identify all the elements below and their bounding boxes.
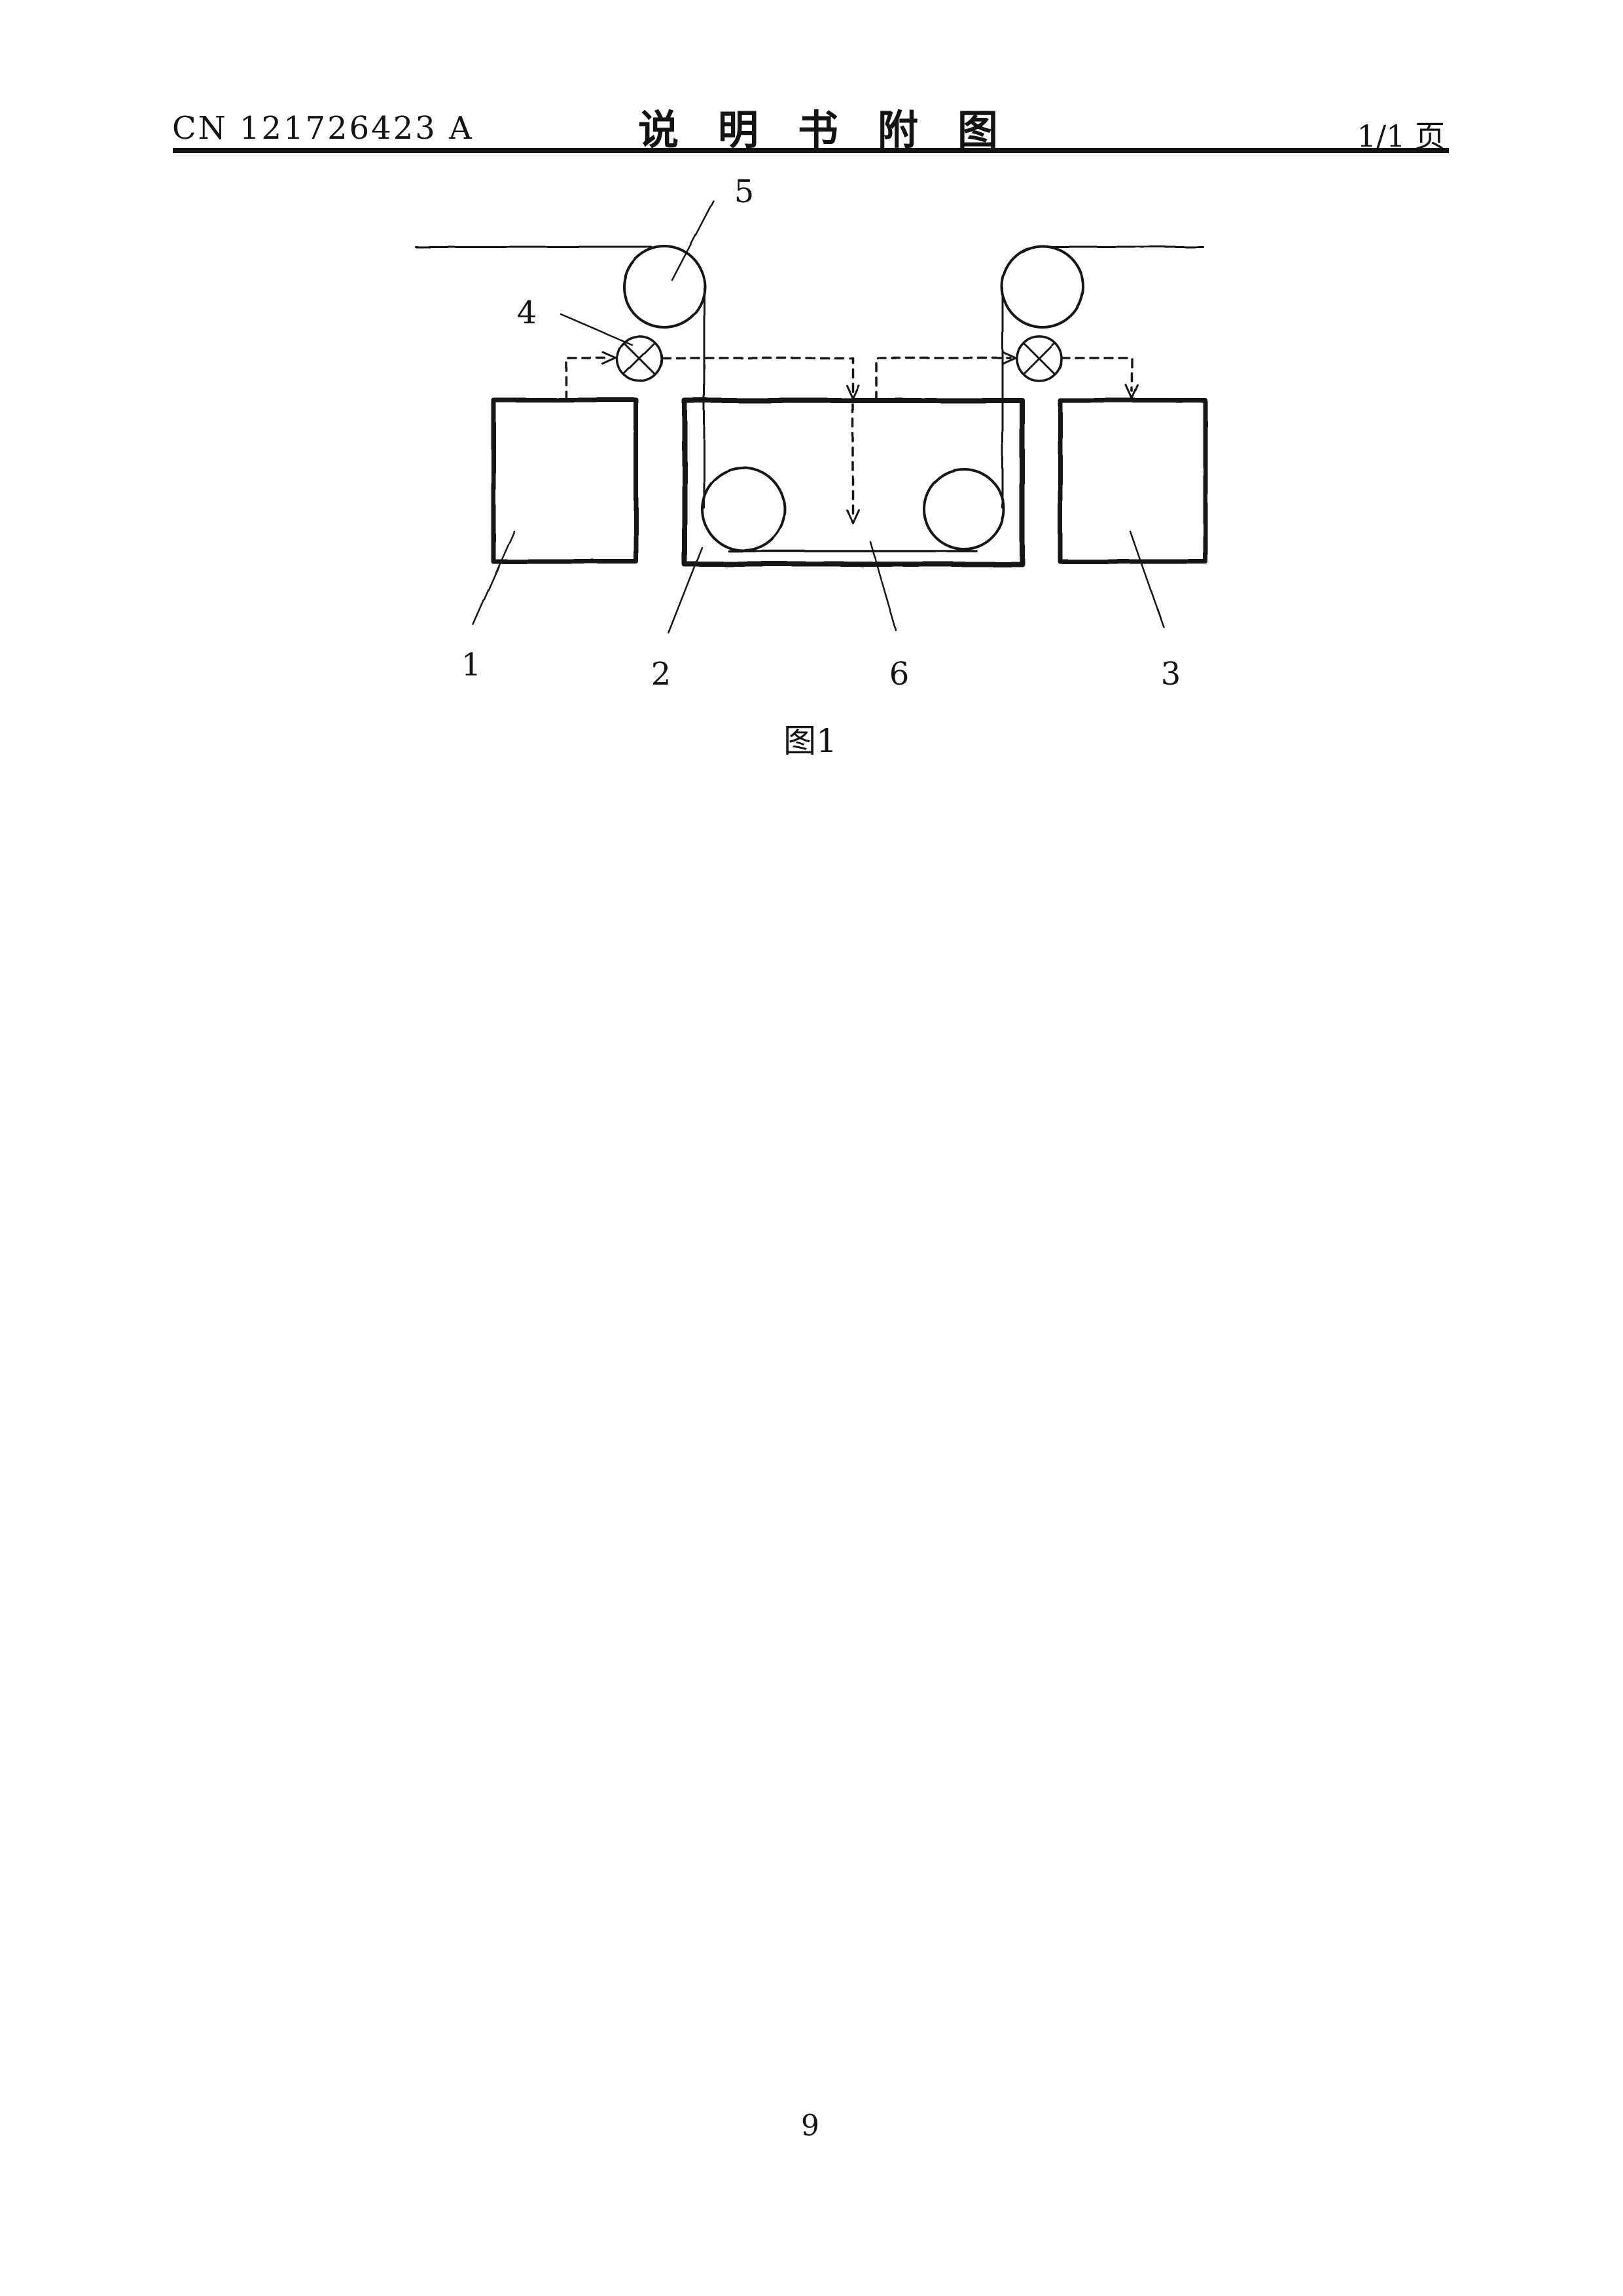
figure-caption: 图1	[783, 715, 837, 762]
bath-roller-right-circle	[924, 469, 1004, 549]
pulley-right-circle	[1002, 246, 1083, 327]
valve-right-cross-icon	[1024, 343, 1055, 374]
valve-right	[1017, 336, 1061, 381]
figure-label-3: 3	[1161, 656, 1181, 692]
flow-dashed-valve4-to-tank2	[662, 358, 853, 391]
tank-1-rect	[493, 400, 636, 562]
leader-line-5	[672, 201, 713, 280]
leader-line-3	[1130, 531, 1164, 627]
bath-roller-left-circle	[702, 468, 785, 550]
flow-dashed-valve-right-to-tank3	[1061, 358, 1132, 391]
leader-line-4	[561, 314, 632, 345]
flow-dashed-tank2-to-valve-right	[876, 358, 1010, 400]
figure-label-2: 2	[651, 656, 671, 692]
valve-4-left-cross-icon	[624, 343, 655, 374]
valve-4-left	[617, 336, 662, 381]
leader-line-6	[870, 542, 896, 630]
figure-label-1: 1	[461, 647, 482, 683]
page-number: 9	[801, 2109, 819, 2143]
pulley-5-left-circle	[624, 246, 705, 327]
figure-label-4: 4	[517, 295, 537, 331]
patent-drawings-page: CN 121726423 A 说明书附图 1/1 页	[0, 0, 1623, 2296]
figure-label-5: 5	[734, 173, 755, 210]
figure-label-6: 6	[889, 656, 910, 692]
figure-1-canvas	[0, 0, 1623, 2296]
